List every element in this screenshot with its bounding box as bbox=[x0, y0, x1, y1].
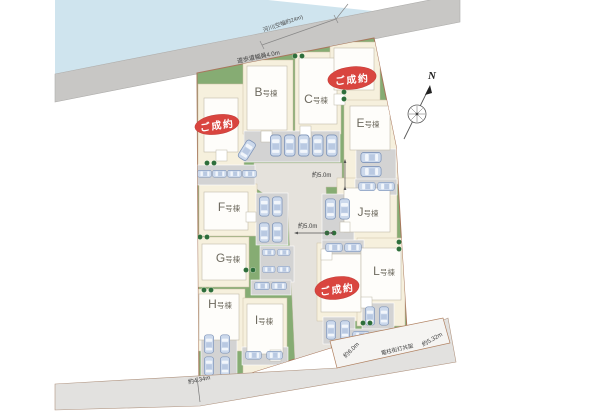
car-icon bbox=[312, 135, 323, 156]
dimension-east-road: 約5.0m bbox=[312, 170, 331, 179]
car-icon bbox=[270, 135, 281, 156]
site-plan: 河川(空幅約24m) 遊歩道幅員4.0m N ご成約 ご成約 ご成約 B号棟 C… bbox=[0, 0, 600, 418]
car-icon bbox=[278, 249, 291, 255]
building-label-l: L号棟 bbox=[362, 264, 406, 278]
car-icon bbox=[255, 282, 270, 289]
car-icon bbox=[220, 335, 229, 353]
car-icon bbox=[284, 135, 295, 156]
car-icon bbox=[213, 170, 227, 177]
site-plan-svg bbox=[0, 0, 600, 418]
car-icon bbox=[198, 170, 212, 177]
car-icon bbox=[298, 135, 309, 156]
building bbox=[247, 304, 283, 354]
building-label-e: E号棟 bbox=[346, 116, 390, 130]
building-label-f: F号棟 bbox=[207, 200, 251, 214]
car-icon bbox=[263, 249, 276, 255]
car-icon bbox=[326, 243, 343, 251]
car-icon bbox=[259, 223, 269, 242]
car-icon bbox=[272, 197, 282, 216]
car-icon bbox=[267, 351, 283, 359]
car-icon bbox=[345, 243, 362, 251]
car-icon bbox=[243, 170, 257, 177]
car-icon bbox=[272, 282, 287, 289]
building-label-c: C号棟 bbox=[294, 92, 338, 106]
building-label-j: J号棟 bbox=[346, 205, 390, 219]
car-icon bbox=[378, 182, 395, 190]
building bbox=[299, 58, 337, 124]
dimension-south-road: 約5.0m bbox=[298, 221, 317, 230]
car-icon bbox=[263, 266, 276, 272]
car-icon bbox=[204, 335, 213, 353]
car-icon bbox=[361, 152, 381, 162]
car-icon bbox=[359, 182, 376, 190]
building-label-h: H号棟 bbox=[198, 297, 242, 311]
north-label: N bbox=[428, 70, 436, 82]
car-icon bbox=[325, 199, 335, 219]
car-icon bbox=[379, 307, 388, 325]
car-icon bbox=[259, 197, 269, 216]
car-icon bbox=[272, 223, 282, 242]
car-icon bbox=[220, 357, 229, 375]
car-icon bbox=[326, 135, 337, 156]
car-icon bbox=[228, 170, 242, 177]
car-icon bbox=[278, 266, 291, 272]
compass-icon bbox=[404, 85, 432, 139]
car-icon bbox=[326, 321, 335, 339]
building-label-g: G号棟 bbox=[206, 251, 250, 265]
building-label-i: I号棟 bbox=[242, 313, 286, 327]
building-label-b: B号棟 bbox=[244, 85, 288, 99]
car-icon bbox=[340, 321, 349, 339]
car-icon bbox=[246, 351, 262, 359]
car-icon bbox=[361, 166, 381, 176]
